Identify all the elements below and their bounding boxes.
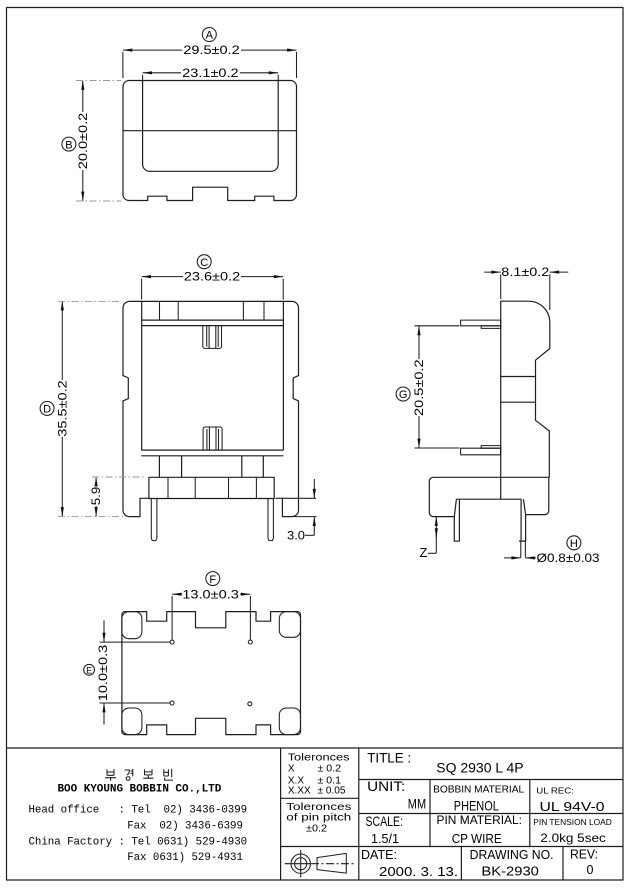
svg-text:DATE:: DATE:	[361, 847, 397, 862]
svg-text:UL 94V-0: UL 94V-0	[540, 800, 605, 814]
svg-text:1.5/1: 1.5/1	[371, 831, 399, 846]
svg-text:SQ 2930 L 4P: SQ 2930 L 4P	[436, 761, 523, 776]
svg-text:China Factory : Tel 0631) 529-: China Factory : Tel 0631) 529-4930	[29, 836, 248, 848]
svg-text:23.6±0.2: 23.6±0.2	[184, 270, 241, 284]
svg-text:DRAWING NO.: DRAWING NO.	[470, 848, 554, 862]
svg-text:B: B	[65, 139, 72, 151]
svg-text:Toleronces: Toleronces	[288, 752, 350, 764]
svg-text:23.1±0.2: 23.1±0.2	[182, 66, 239, 80]
svg-text:10.0±0.3: 10.0±0.3	[96, 644, 110, 701]
svg-text:BOO KYOUNG BOBBIN CO.,LTD: BOO KYOUNG BOBBIN CO.,LTD	[58, 784, 222, 796]
svg-text:UL REC:: UL REC:	[536, 785, 574, 795]
svg-text:Fax 02) 3436-6399: Fax 02) 3436-6399	[127, 820, 243, 832]
svg-text:13.0±0.3: 13.0±0.3	[182, 587, 239, 601]
svg-text:BOBBIN MATERIAL: BOBBIN MATERIAL	[433, 785, 524, 796]
svg-text:G: G	[399, 389, 408, 401]
svg-text:PHENOL: PHENOL	[454, 799, 499, 814]
svg-text:BK-2930: BK-2930	[481, 865, 539, 879]
svg-text:PIN TENSION LOAD: PIN TENSION LOAD	[533, 818, 612, 827]
svg-text:± 0.05: ± 0.05	[318, 786, 346, 797]
svg-text:REV:: REV:	[570, 848, 598, 862]
svg-text:PIN MATERIAL:: PIN MATERIAL:	[437, 813, 523, 827]
svg-text:35.5±0.2: 35.5±0.2	[55, 380, 69, 437]
svg-text:X.XX: X.XX	[288, 786, 311, 797]
svg-text:0: 0	[587, 863, 594, 877]
svg-text:CP WIRE: CP WIRE	[452, 831, 502, 846]
svg-text:D: D	[43, 404, 51, 416]
svg-text:Fax 0631) 529-4931: Fax 0631) 529-4931	[127, 852, 243, 864]
svg-text:Z: Z	[420, 545, 428, 560]
svg-text:±0.2: ±0.2	[306, 822, 327, 834]
svg-text:8.1±0.2: 8.1±0.2	[501, 265, 549, 279]
svg-text:MM: MM	[408, 796, 426, 812]
svg-text:Head office : Tel 02) 3436-: Head office : Tel 02) 3436-0399	[29, 805, 248, 817]
svg-text:SCALE:: SCALE:	[366, 814, 404, 829]
svg-text:Ø0.8±0.03: Ø0.8±0.03	[537, 551, 600, 565]
svg-text:X: X	[288, 764, 295, 775]
svg-text:20.0±0.2: 20.0±0.2	[76, 112, 90, 169]
svg-text:2.0kg 5sec: 2.0kg 5sec	[540, 831, 606, 845]
svg-text:F: F	[209, 574, 216, 586]
svg-text:TITLE :: TITLE :	[367, 751, 411, 766]
svg-text:UNIT:: UNIT:	[367, 779, 405, 794]
svg-text:29.5±0.2: 29.5±0.2	[183, 43, 240, 57]
svg-text:5.9: 5.9	[89, 486, 103, 505]
svg-text:H: H	[570, 538, 578, 550]
svg-text:C: C	[200, 257, 208, 269]
svg-text:± 0.2: ± 0.2	[318, 764, 342, 775]
svg-text:E: E	[86, 665, 92, 675]
svg-text:3.0: 3.0	[287, 529, 305, 543]
svg-text:2000. 3. 13.: 2000. 3. 13.	[379, 865, 458, 879]
svg-text:A: A	[206, 30, 214, 42]
svg-text:20.5±0.2: 20.5±0.2	[412, 359, 426, 416]
